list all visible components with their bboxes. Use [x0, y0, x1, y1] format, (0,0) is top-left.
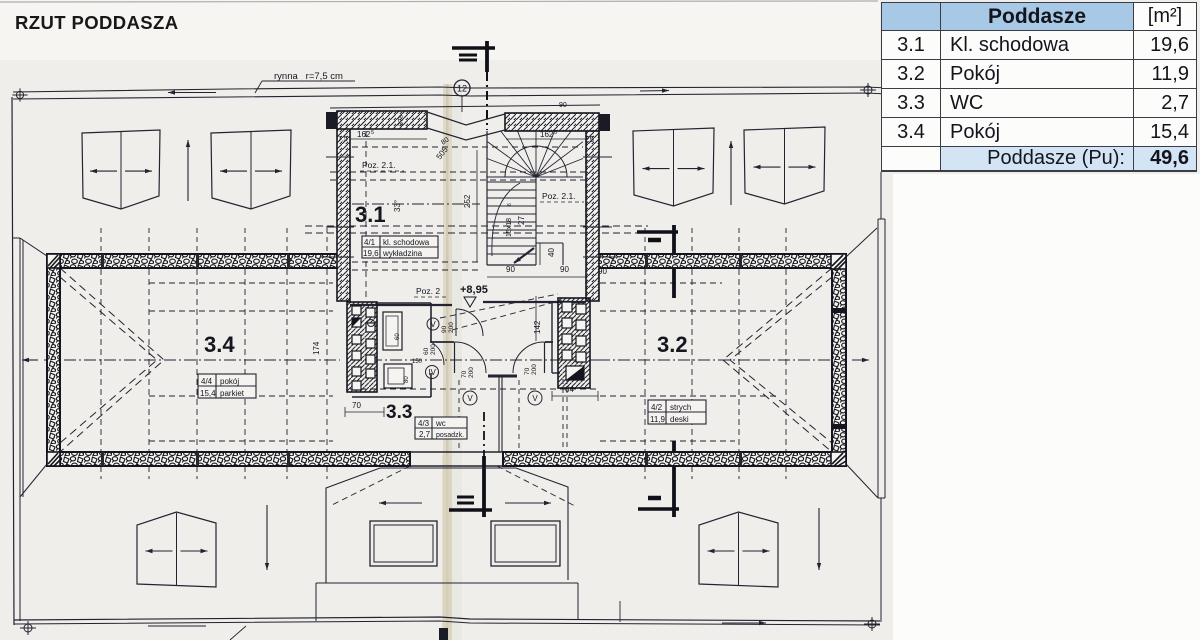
svg-text:posadzk.: posadzk. — [436, 432, 464, 439]
svg-text:wc: wc — [435, 419, 446, 428]
svg-text:V: V — [532, 394, 538, 403]
svg-text:V: V — [467, 394, 473, 403]
svg-text:kl. schodowa: kl. schodowa — [383, 238, 430, 247]
svg-text:90: 90 — [441, 325, 448, 333]
svg-text:80: 80 — [404, 376, 410, 383]
svg-text:252: 252 — [463, 194, 472, 208]
svg-text:4/4: 4/4 — [201, 377, 213, 386]
svg-text:5: 5 — [399, 115, 405, 118]
svg-text:deski: deski — [670, 415, 689, 424]
svg-text:90: 90 — [560, 265, 569, 274]
svg-text:RZUT PODDASZA: RZUT PODDASZA — [15, 12, 178, 33]
svg-text:4/2: 4/2 — [651, 403, 663, 412]
svg-text:25: 25 — [585, 135, 594, 144]
svg-text:+8,95: +8,95 — [460, 284, 488, 296]
svg-text:strych: strych — [670, 403, 691, 412]
svg-text:wykładzina: wykładzina — [382, 249, 423, 258]
svg-text:70: 70 — [524, 367, 531, 375]
svg-text:174: 174 — [312, 341, 321, 355]
svg-text:11,9: 11,9 — [650, 415, 666, 424]
svg-text:5: 5 — [554, 130, 557, 136]
svg-text:12: 12 — [457, 84, 467, 94]
svg-text:60: 60 — [423, 347, 430, 355]
svg-text:15x18: 15x18 — [506, 218, 513, 237]
svg-text:70: 70 — [352, 401, 361, 410]
svg-text:37: 37 — [398, 118, 405, 126]
svg-text:150: 150 — [412, 359, 423, 365]
svg-text:200: 200 — [531, 364, 538, 375]
svg-text:200: 200 — [468, 367, 475, 378]
svg-text:142: 142 — [533, 320, 542, 334]
svg-text:70: 70 — [461, 370, 468, 378]
svg-text:4/1: 4/1 — [364, 238, 376, 247]
svg-text:27: 27 — [517, 216, 526, 225]
svg-text:2,7: 2,7 — [419, 430, 431, 439]
svg-text:200: 200 — [448, 322, 455, 333]
svg-text:3.1: 3.1 — [355, 202, 386, 227]
svg-text:4/3: 4/3 — [418, 419, 430, 428]
svg-text:3.4: 3.4 — [204, 332, 235, 357]
svg-text:90: 90 — [598, 267, 607, 276]
svg-text:pokój: pokój — [220, 377, 239, 386]
svg-text:90: 90 — [506, 265, 515, 274]
svg-text:90: 90 — [559, 102, 567, 109]
svg-text:40: 40 — [547, 248, 556, 257]
svg-text:15,4: 15,4 — [200, 389, 216, 398]
svg-text:200: 200 — [430, 344, 437, 355]
svg-text:7,5: 7,5 — [338, 136, 348, 143]
svg-text:V: V — [430, 320, 436, 329]
svg-text:parkiet: parkiet — [220, 389, 245, 398]
svg-text:60: 60 — [395, 333, 401, 340]
svg-text:Poz. 2.1.: Poz. 2.1. — [362, 160, 396, 170]
svg-text:IV: IV — [428, 368, 436, 377]
svg-text:19,6: 19,6 — [363, 249, 379, 258]
svg-text:Poz. 2: Poz. 2 — [416, 286, 440, 296]
svg-text:3.3: 3.3 — [386, 402, 412, 423]
svg-text:Poz. 2.1.: Poz. 2.1. — [542, 191, 576, 201]
svg-text:162: 162 — [357, 130, 371, 139]
svg-text:5: 5 — [371, 130, 374, 136]
svg-text:64: 64 — [565, 385, 574, 394]
svg-text:3.2: 3.2 — [657, 332, 688, 357]
svg-text:33°: 33° — [393, 200, 402, 212]
svg-text:rynna r=7,5 cm: rynna r=7,5 cm — [274, 71, 343, 82]
